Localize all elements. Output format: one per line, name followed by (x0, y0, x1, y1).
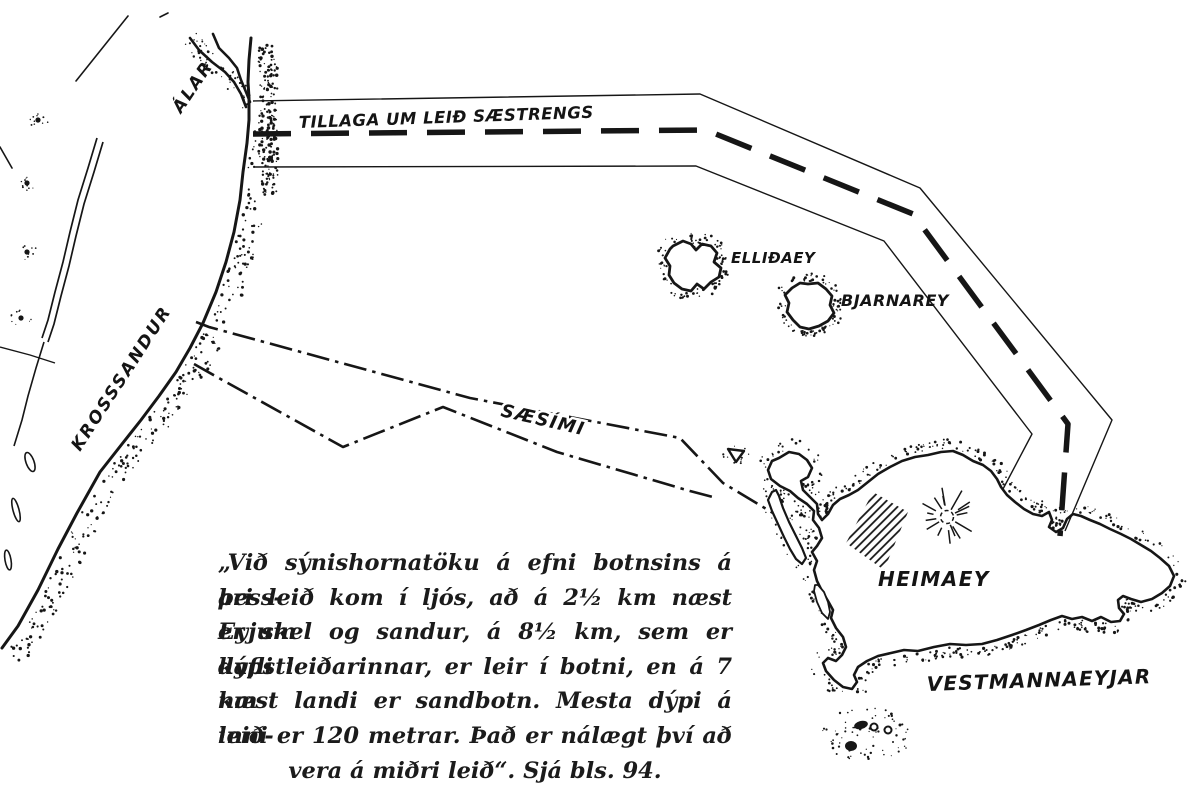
label-alar: ÁLAR (166, 56, 218, 118)
label-vestmannaeyjar: VESTMANNAEYJAR (926, 664, 1151, 696)
sea-telephone-cable-lines (194, 322, 773, 513)
caption-line: kafli leiðarinnar, er leir í botni, en á… (218, 650, 732, 685)
caption-line: ari leið kom í ljós, að á 2½ km næst Eyj… (218, 581, 732, 616)
caption-line: næst landi er sandbotn. Mesta dýpi á lei… (218, 684, 732, 719)
caption-line: vera á miðri leið“. Sjá bls. 94. (218, 754, 732, 788)
inland-waterways (0, 13, 168, 570)
map-caption: „Við sýnishornatöku á efni botnsins á þe… (218, 546, 732, 788)
caption-line: inni er 120 metrar. Það er nálægt því að (218, 719, 732, 754)
caption-line: „Við sýnishornatöku á efni botnsins á þe… (218, 546, 732, 581)
label-bjarnarey: BJARNAREY (841, 291, 950, 310)
scanned-map-page: ÁLAR TILLAGA UM LEIÐ SÆSTRENGS KROSSSAND… (0, 0, 1200, 788)
caption-line: er skel og sandur, á 8½ km, sem er dýpst… (218, 615, 732, 650)
label-heimaey: HEIMAEY (878, 567, 991, 591)
label-proposed-route: TILLAGA UM LEIÐ SÆSTRENGS (298, 103, 594, 132)
label-ellidaey: ELLIÐAEY (731, 249, 817, 267)
label-krosssandur: KROSSSANDUR (67, 302, 176, 454)
